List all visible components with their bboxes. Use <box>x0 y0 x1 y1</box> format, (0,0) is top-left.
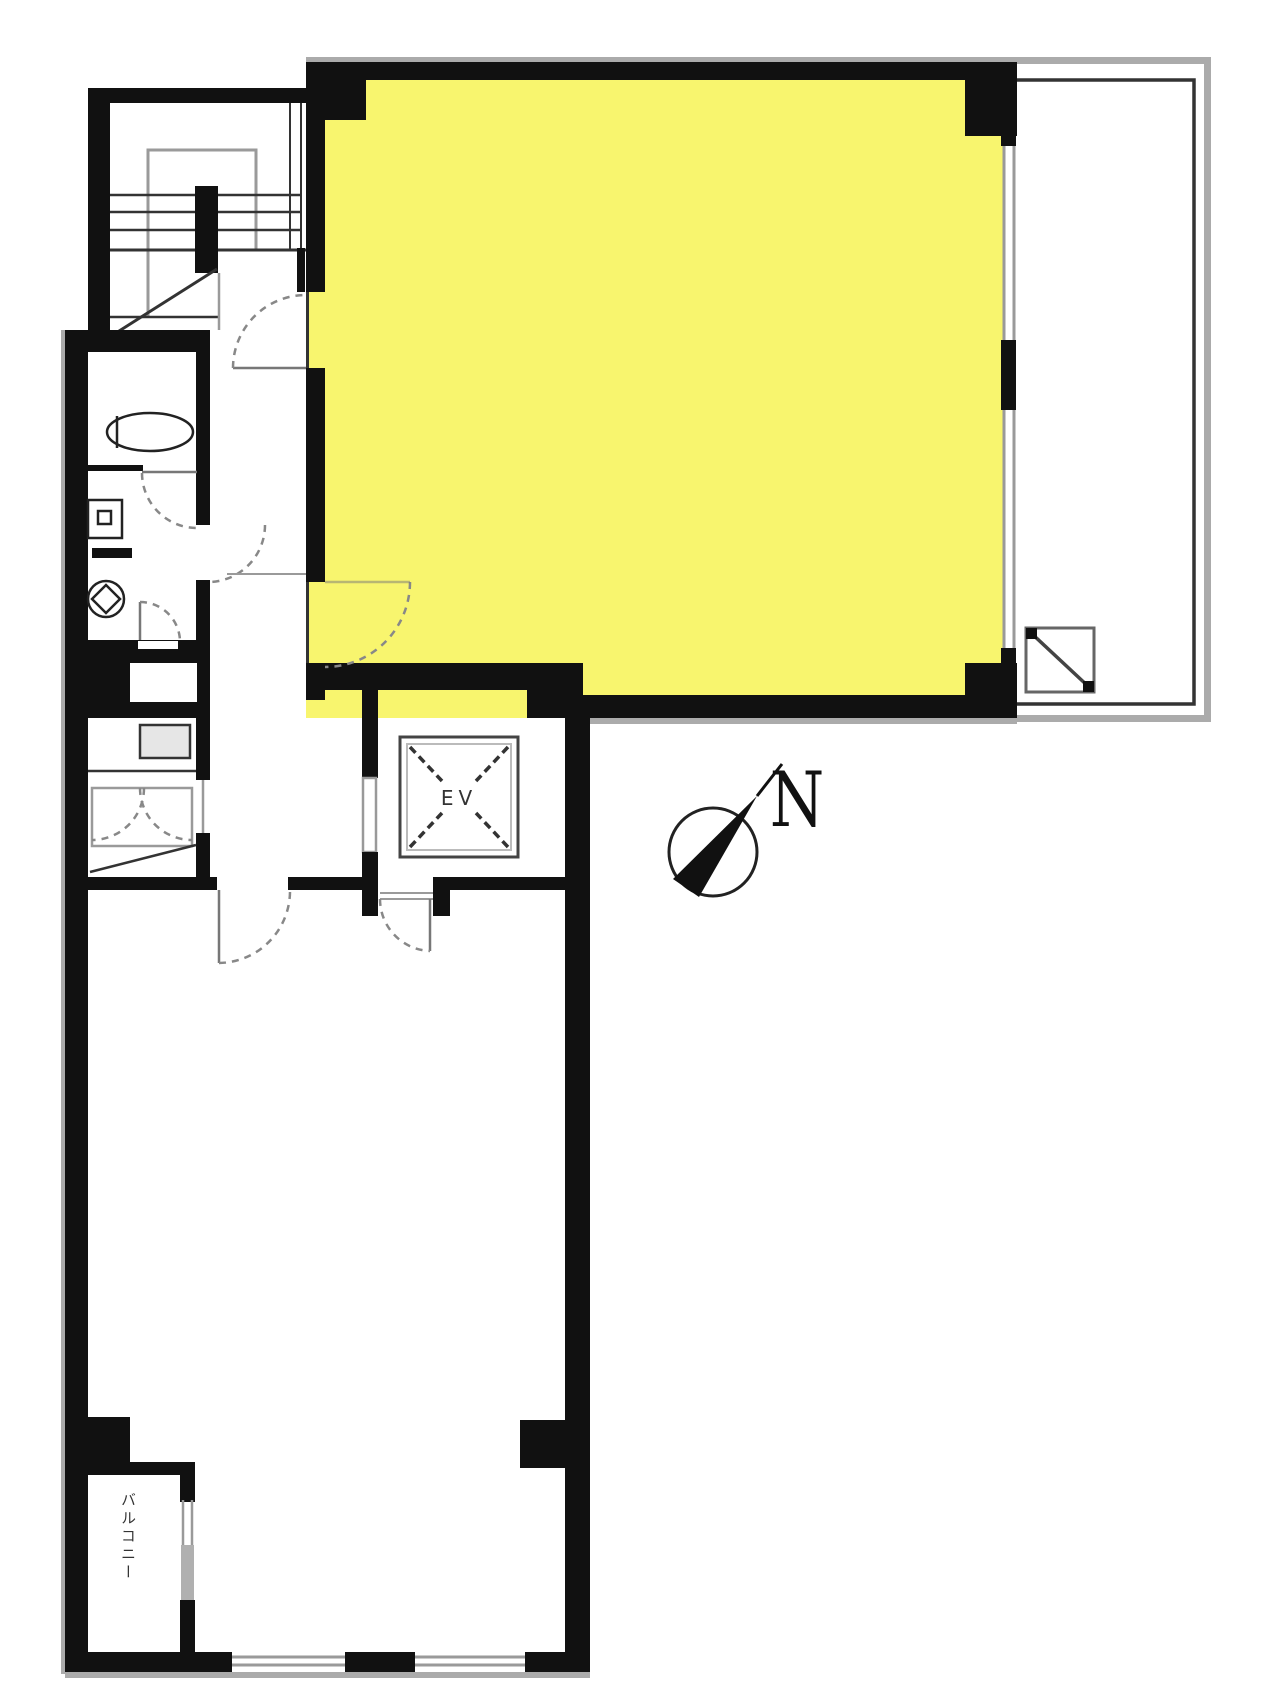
elevator-shaft: EV <box>362 690 567 951</box>
wall-segment <box>180 1462 195 1502</box>
door-arc <box>233 295 306 368</box>
wall-segment <box>583 718 1017 724</box>
wall-segment <box>65 877 217 890</box>
wall-segment <box>306 57 1211 62</box>
staircase-icon <box>97 150 306 345</box>
wall-segment <box>565 695 590 1672</box>
wall-segment <box>450 877 567 890</box>
corner-pillar <box>965 663 1017 720</box>
wall-segment <box>88 88 110 330</box>
wall-segment <box>196 330 210 525</box>
wall-segment <box>362 852 378 916</box>
door-opening <box>138 641 178 649</box>
door-arc <box>140 602 180 642</box>
door-arc <box>219 890 290 963</box>
wall-segment <box>65 330 210 352</box>
vent-square-icon <box>1026 628 1094 692</box>
elevator-label: EV <box>441 786 477 810</box>
north-label: N <box>770 756 825 845</box>
wall-segment <box>88 465 143 471</box>
wall-segment <box>180 1600 195 1655</box>
wall-segment <box>88 88 306 103</box>
right-balcony <box>1017 57 1211 722</box>
wall-segment <box>65 1672 590 1678</box>
toilet-icon <box>107 413 193 451</box>
shelf-icon <box>92 548 132 558</box>
corner-pillar <box>520 1420 565 1468</box>
wall-segment <box>525 1652 590 1672</box>
wall-segment <box>65 330 88 890</box>
elevator-car: EV <box>400 737 518 857</box>
sink-icon <box>88 500 122 538</box>
wall-segment <box>288 877 362 890</box>
window-segment <box>181 1545 194 1602</box>
door-arc <box>380 893 433 951</box>
wall-segment <box>196 580 210 780</box>
wall-segment <box>306 62 325 292</box>
wall-segment <box>65 1652 232 1672</box>
wall-segment <box>362 690 378 778</box>
door-arc <box>142 472 197 528</box>
wall-segment <box>61 330 65 1674</box>
wall-segment <box>306 62 1017 80</box>
wash-basin-icon <box>88 581 124 617</box>
bottom-window-wall <box>65 1652 590 1678</box>
highlighted-room-floor <box>306 62 1003 718</box>
wall-segment <box>583 695 1017 718</box>
balcony-outer-rail <box>1017 57 1211 722</box>
service-niche <box>130 663 197 702</box>
highlighted-room <box>233 57 1211 724</box>
wall-segment <box>306 368 325 582</box>
elevator-door <box>363 778 376 852</box>
compass: N <box>669 756 824 897</box>
wall-segment <box>433 877 450 916</box>
floor-plan: EV N バルコニー <box>0 0 1280 1704</box>
wall-segment <box>82 1462 195 1475</box>
closet-double-doors <box>90 788 196 872</box>
balcony-inner-rail <box>1017 80 1194 704</box>
corner-pillar <box>965 62 1017 136</box>
washing-machine-icon <box>140 725 190 758</box>
stairwell <box>88 88 306 345</box>
wall-segment <box>345 1652 415 1672</box>
balcony-label: バルコニー <box>119 1492 137 1582</box>
window-wall <box>1001 132 1016 663</box>
wall-segment <box>65 890 88 1420</box>
wall-segment <box>297 248 305 292</box>
wall-segment <box>65 1470 88 1672</box>
wall-segment <box>306 663 540 690</box>
balcony: バルコニー <box>65 1462 195 1672</box>
